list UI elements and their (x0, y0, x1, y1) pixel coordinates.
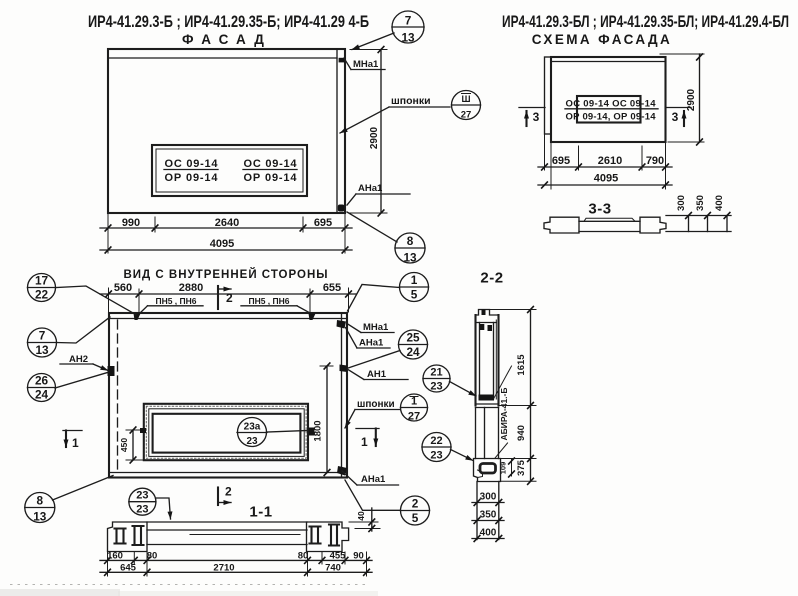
svg-text:ВИД С ВНУТРЕННЕЙ СТОРОНЫ: ВИД С ВНУТРЕННЕЙ СТОРОНЫ (123, 268, 328, 281)
svg-text:шпонки: шпонки (391, 95, 431, 107)
svg-text:80: 80 (147, 550, 158, 561)
svg-text:22: 22 (430, 435, 442, 447)
svg-text:АНа1: АНа1 (361, 474, 386, 485)
svg-text:2900: 2900 (369, 126, 380, 149)
svg-text:90: 90 (353, 550, 364, 561)
svg-text:МНа1: МНа1 (363, 322, 389, 333)
svg-text:645: 645 (120, 562, 137, 573)
svg-text:23: 23 (136, 504, 148, 516)
svg-text:450: 450 (119, 438, 129, 452)
svg-text:ИР4-41.29.3-Б ; ИР4-41.29.35-Б: ИР4-41.29.3-Б ; ИР4-41.29.35-Б; ИР4-41.2… (88, 13, 369, 31)
svg-text:2610: 2610 (598, 155, 622, 167)
svg-text:695: 695 (552, 155, 570, 167)
svg-text:1: 1 (72, 436, 79, 450)
svg-text:3-3: 3-3 (588, 201, 611, 218)
svg-text:23а: 23а (244, 422, 261, 433)
svg-text:ПН5 , ПН6: ПН5 , ПН6 (248, 296, 289, 306)
svg-text:400: 400 (714, 195, 725, 211)
svg-text:ОС 09-14: ОС 09-14 (165, 158, 219, 170)
svg-text:4095: 4095 (594, 173, 618, 185)
svg-text:5: 5 (412, 511, 419, 525)
svg-text:109: 109 (499, 462, 508, 475)
svg-text:8: 8 (407, 234, 414, 248)
svg-text:990: 990 (122, 217, 140, 229)
svg-text:ИР4-41.29.3-БЛ ; ИР4-41.29.35-: ИР4-41.29.3-БЛ ; ИР4-41.29.35-БЛ; ИР4-41… (502, 13, 789, 31)
svg-text:1: 1 (411, 273, 418, 287)
svg-text:АНа1: АНа1 (358, 183, 383, 194)
svg-text:300: 300 (676, 195, 687, 211)
svg-text:13: 13 (403, 251, 417, 265)
svg-text:ПН5 , ПН6: ПН5 , ПН6 (155, 296, 196, 306)
svg-text:2: 2 (225, 485, 232, 499)
svg-text:АНа1: АНа1 (359, 338, 384, 349)
svg-text:3: 3 (533, 110, 540, 124)
svg-text:790: 790 (646, 155, 664, 167)
svg-text:940: 940 (516, 425, 527, 441)
svg-text:23: 23 (430, 381, 442, 393)
svg-text:1-1: 1-1 (249, 504, 272, 521)
svg-text:ФАСАД: ФАСАД (182, 32, 272, 47)
svg-text:3: 3 (672, 110, 679, 124)
svg-text:17: 17 (35, 274, 49, 288)
svg-text:2: 2 (412, 497, 419, 511)
svg-text:23: 23 (136, 490, 148, 502)
svg-text:7: 7 (39, 329, 46, 343)
svg-text:СХЕМА ФАСАДА: СХЕМА ФАСАДА (532, 32, 672, 47)
svg-text:ОС 09-14 ОС 09-14: ОС 09-14 ОС 09-14 (566, 99, 657, 110)
svg-text:400: 400 (480, 528, 497, 539)
svg-text:23: 23 (430, 450, 442, 462)
svg-text:22: 22 (35, 288, 49, 302)
svg-text:4095: 4095 (210, 238, 234, 250)
svg-text:13: 13 (401, 31, 415, 45)
svg-text:740: 740 (325, 562, 341, 573)
svg-text:300: 300 (480, 492, 497, 503)
svg-text:21: 21 (430, 367, 442, 379)
svg-text:1: 1 (361, 435, 368, 449)
svg-text:27: 27 (461, 110, 472, 121)
svg-text:1800: 1800 (313, 420, 324, 441)
svg-text:27: 27 (408, 411, 420, 423)
svg-text:25: 25 (406, 331, 420, 345)
svg-text:МНа1: МНа1 (353, 59, 379, 70)
svg-text:5: 5 (411, 288, 418, 302)
svg-text:АБИРА-41.-Б: АБИРА-41.-Б (499, 387, 509, 440)
svg-text:АН1: АН1 (367, 369, 387, 380)
svg-text:455: 455 (330, 550, 347, 561)
svg-text:шпонки: шпонки (357, 399, 395, 410)
svg-text:8: 8 (37, 494, 44, 508)
svg-text:560: 560 (114, 282, 132, 294)
svg-text:24: 24 (406, 345, 420, 359)
svg-text:ОР 09-14: ОР 09-14 (244, 172, 298, 184)
svg-text:695: 695 (314, 217, 332, 229)
svg-text:13: 13 (33, 510, 47, 524)
svg-text:2640: 2640 (215, 217, 239, 229)
svg-text:1615: 1615 (516, 354, 527, 376)
svg-text:2880: 2880 (179, 282, 203, 294)
svg-text:24: 24 (35, 388, 49, 402)
svg-text:13: 13 (35, 343, 49, 357)
svg-text:350: 350 (695, 195, 706, 211)
svg-text:2: 2 (226, 291, 233, 305)
svg-text:23: 23 (246, 436, 258, 447)
svg-text:2900: 2900 (686, 88, 697, 111)
svg-text:80: 80 (298, 550, 309, 561)
svg-text:26: 26 (35, 374, 49, 388)
svg-text:160: 160 (107, 550, 123, 561)
svg-text:40: 40 (356, 511, 366, 521)
svg-text:ОР 09-14, ОР 09-14: ОР 09-14, ОР 09-14 (566, 112, 657, 123)
svg-text:7: 7 (405, 14, 412, 28)
svg-text:375: 375 (516, 459, 527, 476)
svg-text:2-2: 2-2 (480, 270, 503, 287)
svg-text:ОР 09-14: ОР 09-14 (165, 172, 219, 184)
svg-text:655: 655 (323, 282, 341, 294)
svg-text:350: 350 (480, 510, 497, 521)
svg-text:ОС 09-14: ОС 09-14 (244, 158, 298, 170)
svg-text:Ш: Ш (461, 94, 470, 104)
svg-text:2710: 2710 (213, 562, 234, 573)
svg-text:1: 1 (411, 396, 417, 408)
